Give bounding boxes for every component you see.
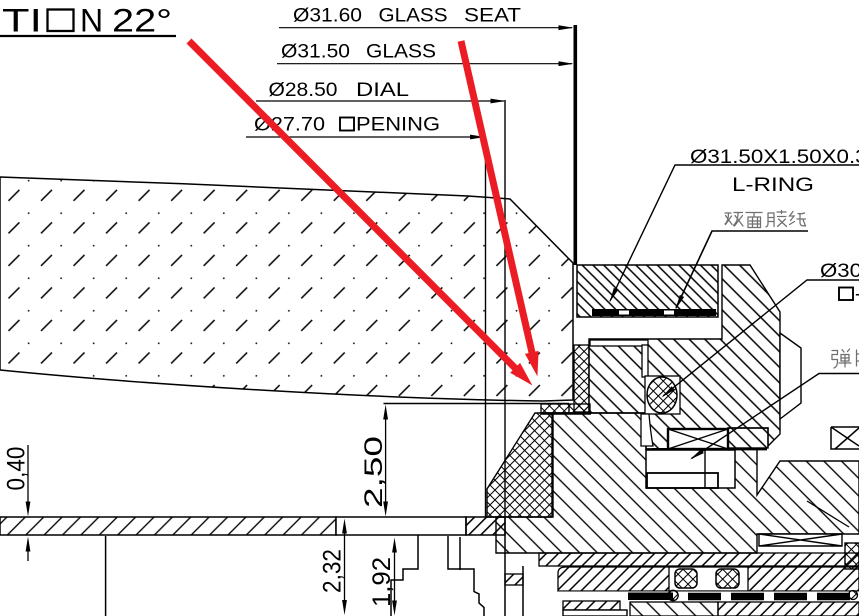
svg-text:SEAT: SEAT [464, 6, 521, 27]
svg-text:-RING: -RING [855, 284, 859, 305]
svg-text:N: N [80, 3, 103, 39]
svg-text:DIAL: DIAL [356, 80, 409, 101]
svg-text:2,50: 2,50 [360, 436, 388, 508]
svg-text:Ø31.60: Ø31.60 [293, 6, 362, 27]
svg-text:Ø31.50: Ø31.50 [281, 42, 350, 63]
svg-text:22°: 22° [112, 3, 172, 39]
svg-text:PENING: PENING [356, 115, 440, 136]
svg-text:0,40: 0,40 [3, 447, 31, 491]
svg-text:GLASS: GLASS [379, 6, 448, 27]
svg-text:1,92: 1,92 [368, 557, 396, 607]
svg-text:Ø30.50X1: Ø30.50X1 [820, 261, 859, 282]
svg-text:2,32: 2,32 [319, 549, 347, 593]
svg-text:GLASS: GLASS [366, 42, 436, 63]
svg-text:TI: TI [2, 3, 42, 39]
svg-text:L-RING: L-RING [732, 175, 814, 196]
svg-text:Ø28.50: Ø28.50 [269, 80, 338, 101]
